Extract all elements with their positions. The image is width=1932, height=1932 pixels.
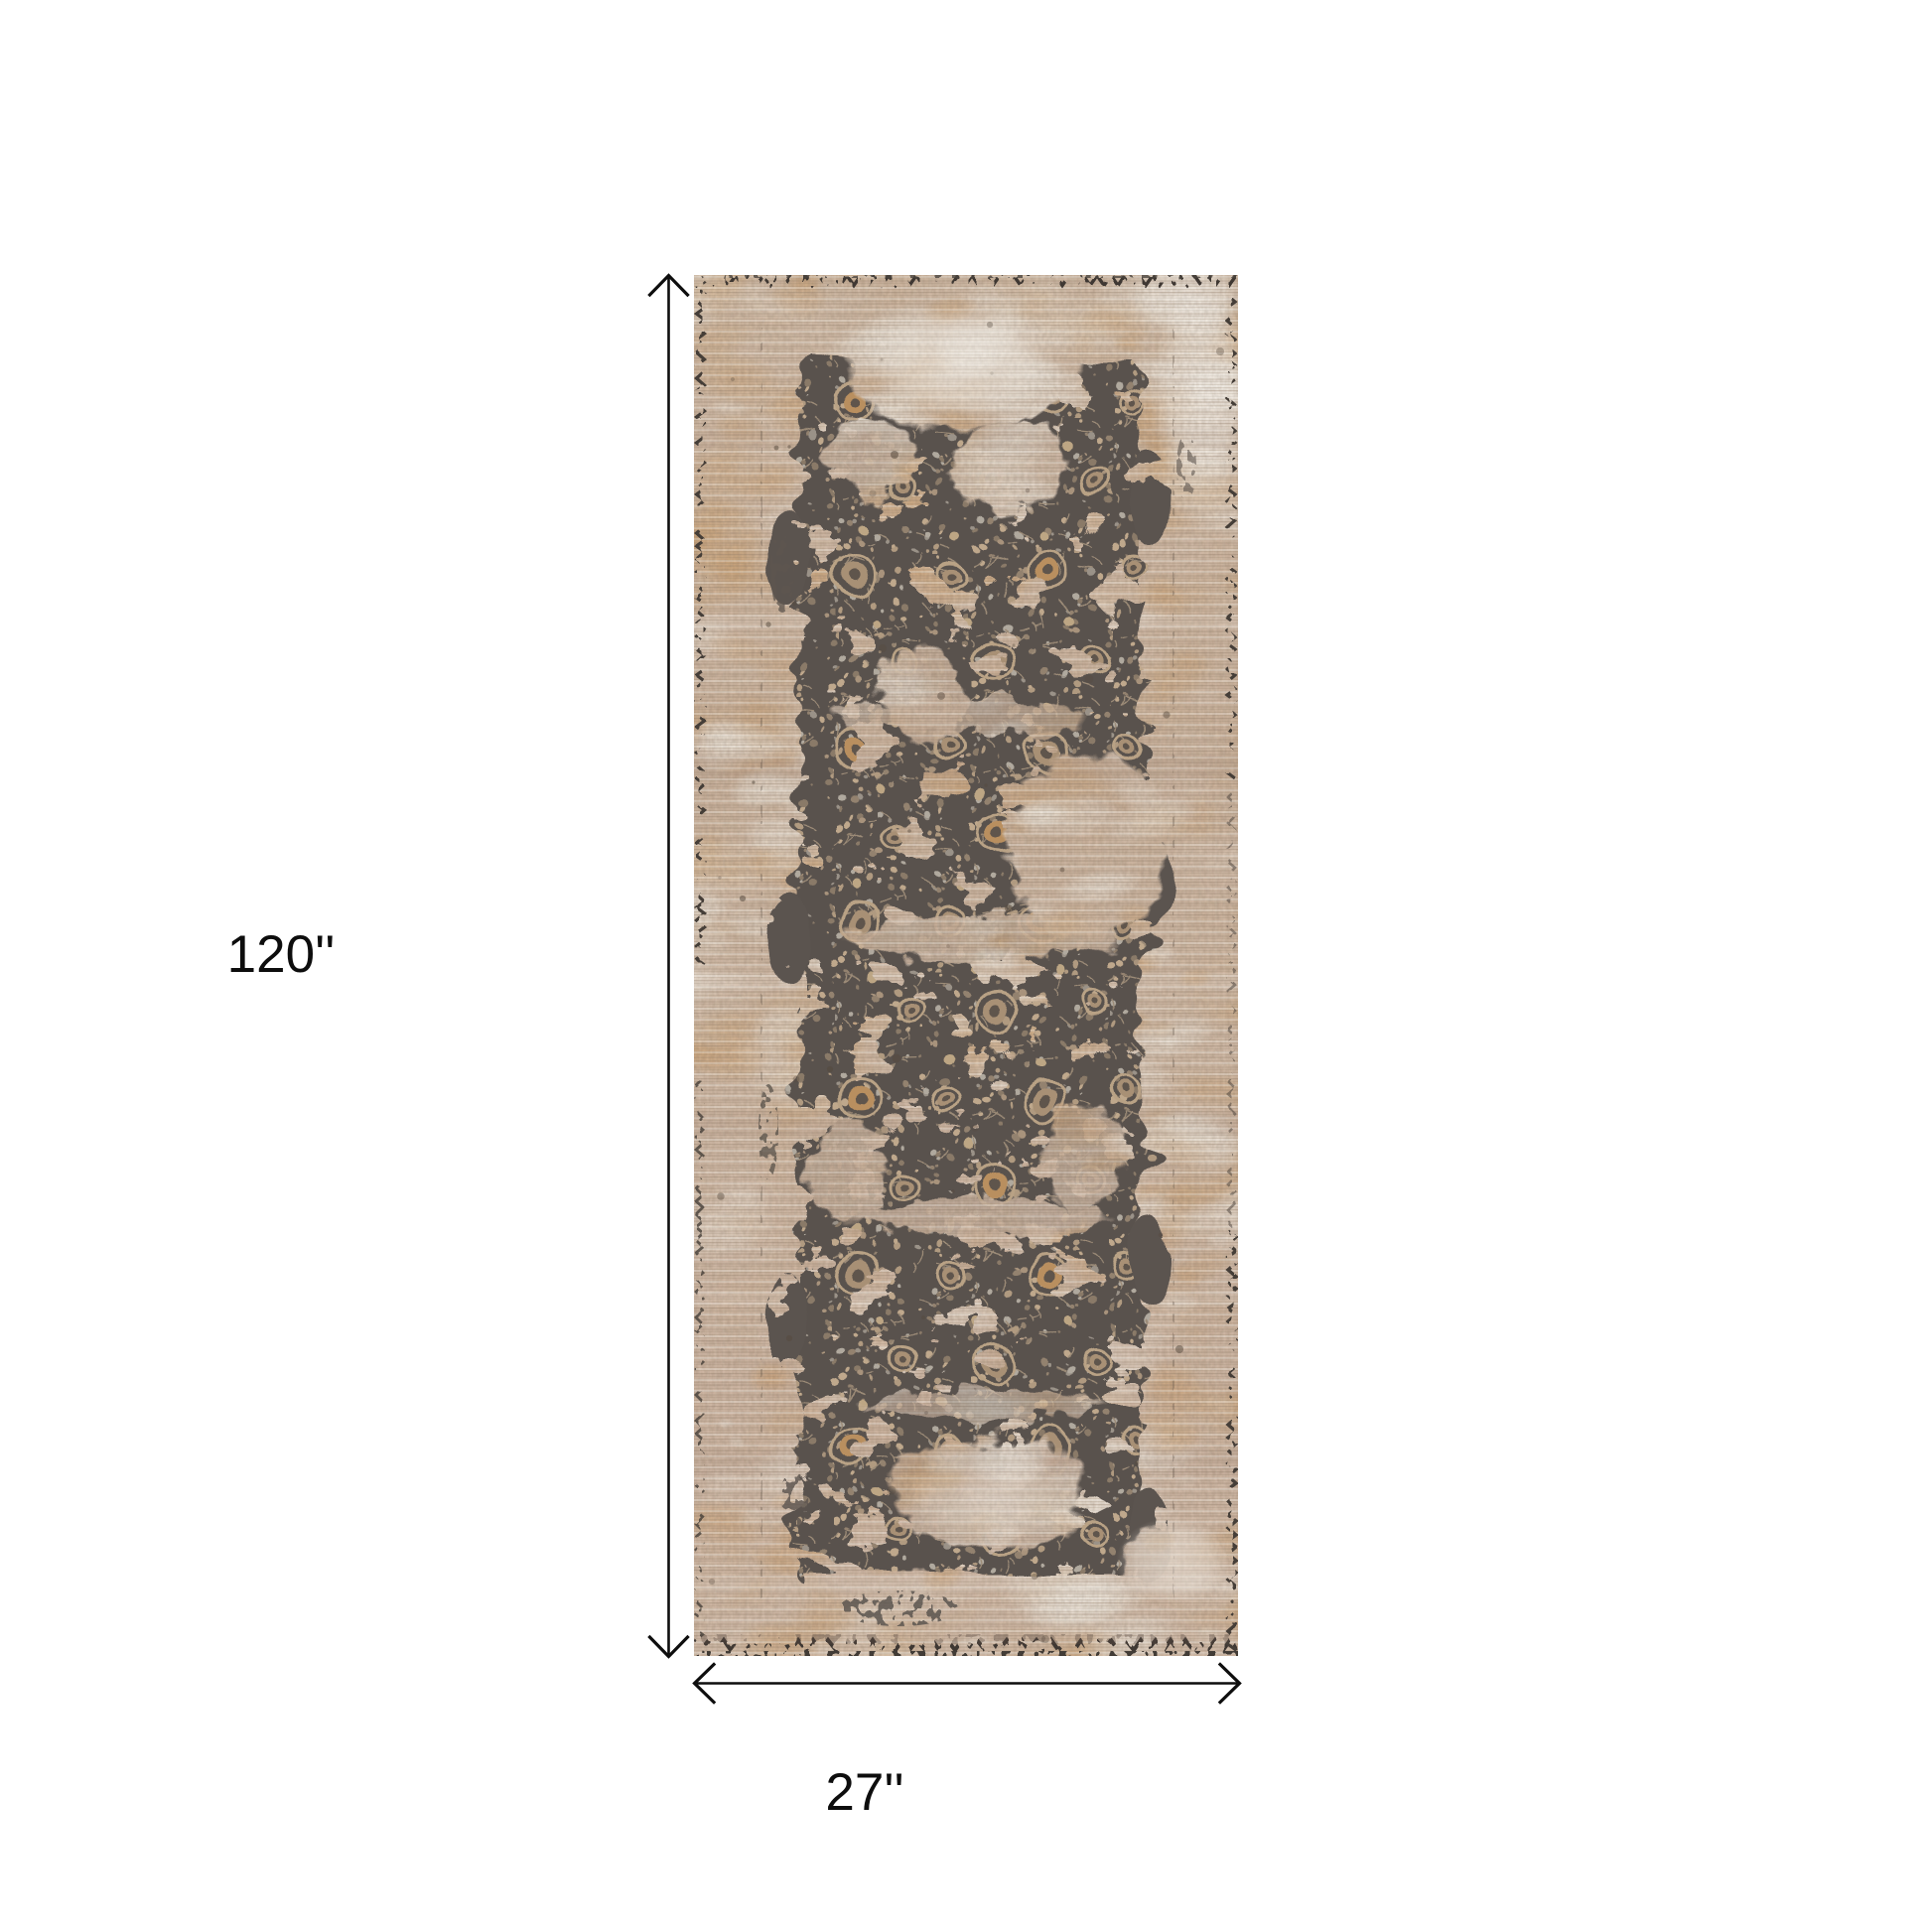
svg-text:120'': 120'': [227, 925, 336, 984]
svg-text:27'': 27'': [825, 1763, 903, 1822]
